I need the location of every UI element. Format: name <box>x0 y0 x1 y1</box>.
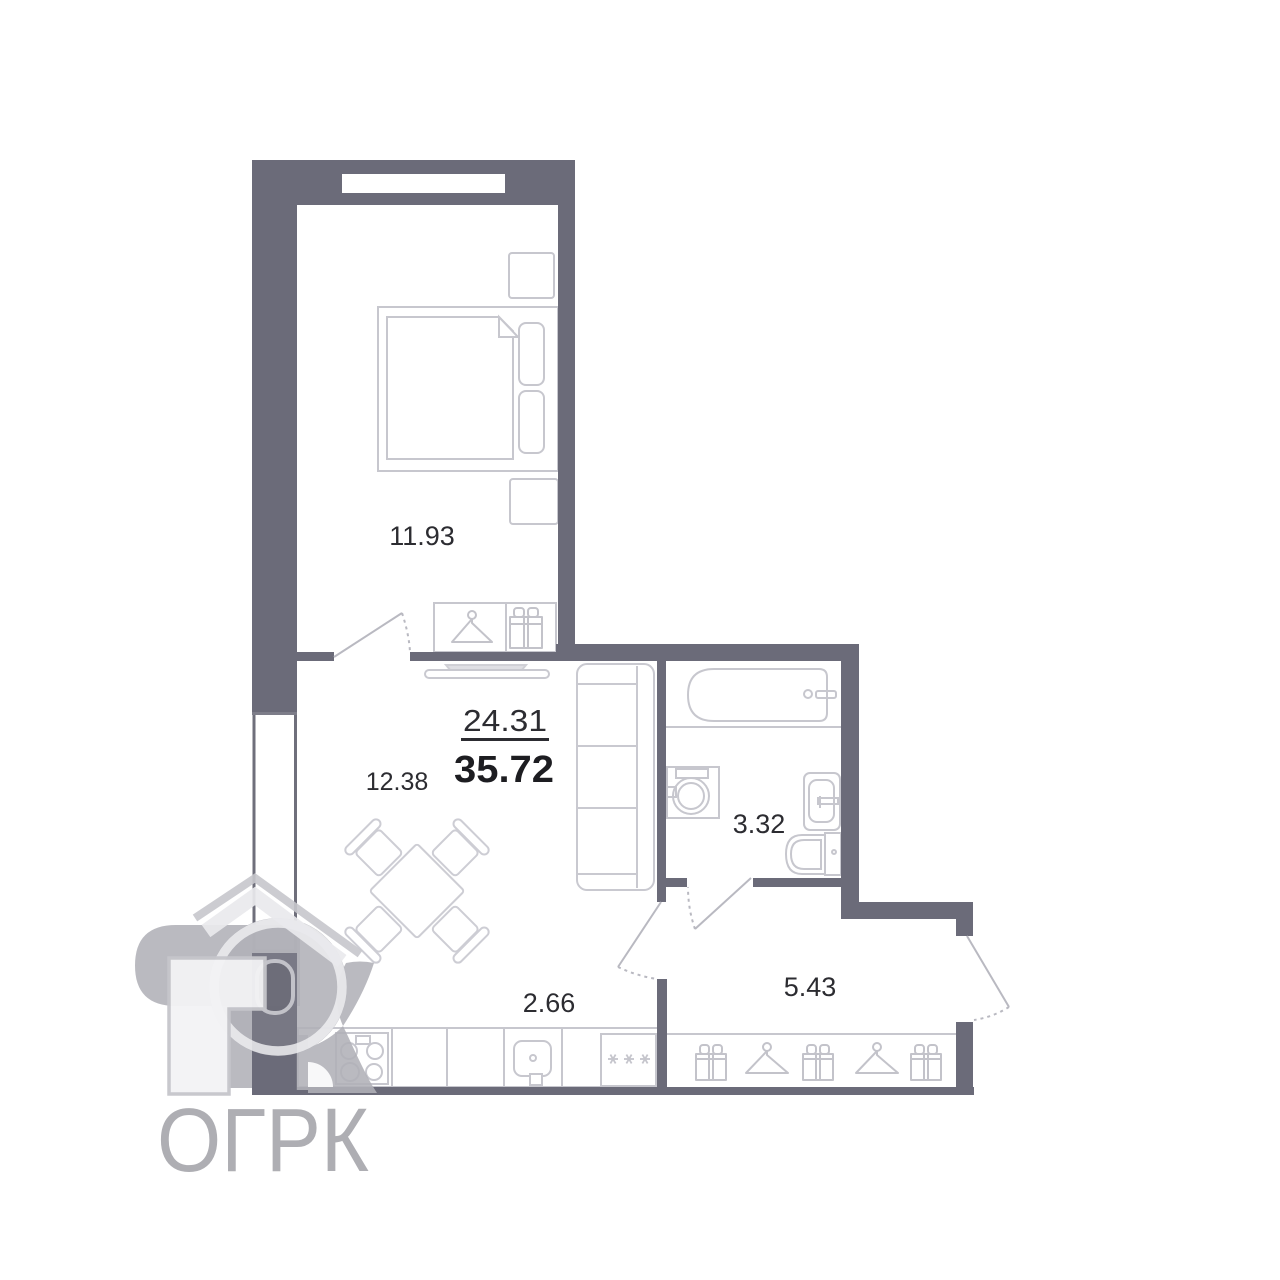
svg-text:2.66: 2.66 <box>523 988 576 1018</box>
svg-text:24.31: 24.31 <box>463 703 547 738</box>
svg-text:11.93: 11.93 <box>389 521 455 551</box>
svg-text:ОГРК: ОГРК <box>157 1091 369 1191</box>
svg-text:12.38: 12.38 <box>366 768 429 796</box>
svg-text:3.32: 3.32 <box>733 809 786 839</box>
svg-text:35.72: 35.72 <box>454 749 554 791</box>
svg-text:5.43: 5.43 <box>784 972 837 1002</box>
